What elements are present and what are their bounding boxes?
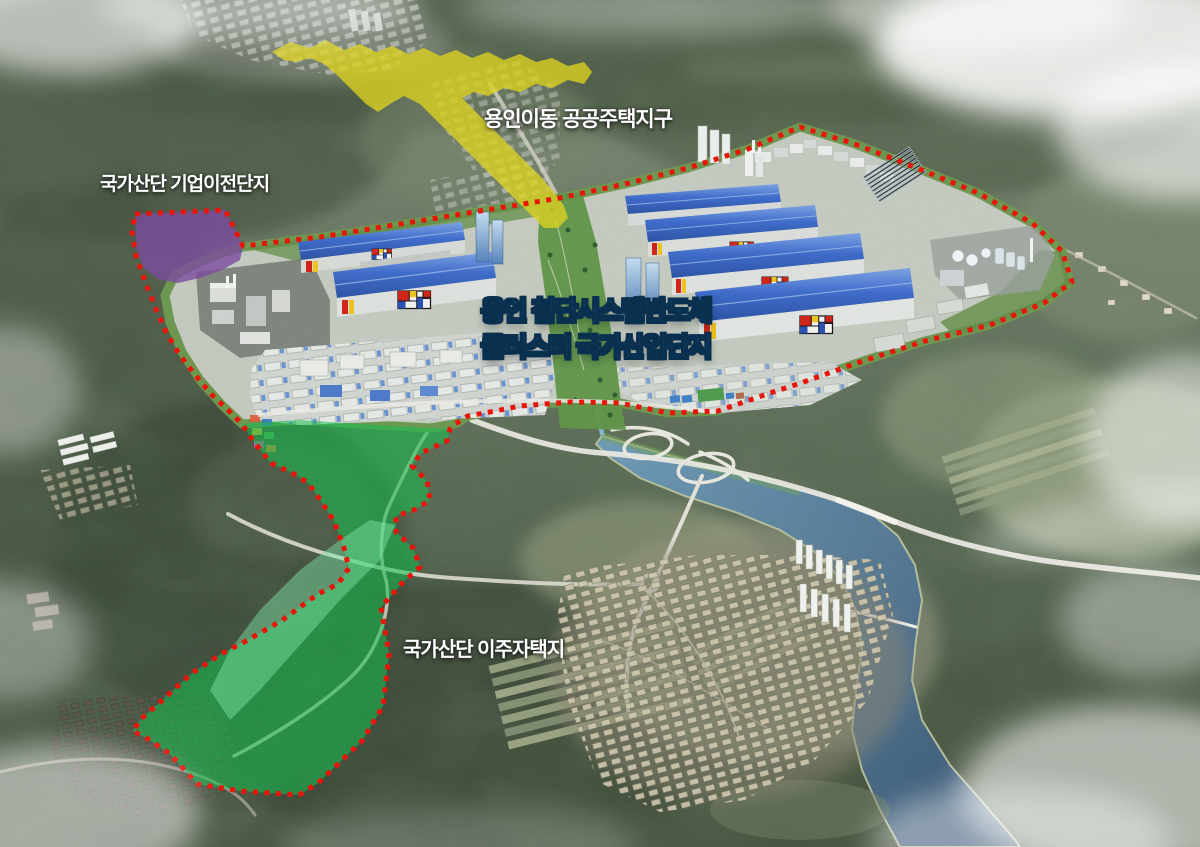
label-business-relocation-site: 국가산단 기업이전단지 [100,169,269,196]
label-resettlement-site: 국가산단 이주자택지 [403,633,564,662]
aerial-rendering: 용인이동 공공주택지구 국가산단 기업이전단지 용인 첨단시스템반도체 클러스터… [0,0,1200,847]
label-industrial-complex-line1: 용인 첨단시스템반도체 [481,293,711,329]
label-public-housing-district: 용인이동 공공주택지구 [484,103,672,133]
label-industrial-complex-line2: 클러스터 국가산업단지 [481,329,711,365]
label-industrial-complex-title: 용인 첨단시스템반도체 클러스터 국가산업단지 [481,293,711,365]
